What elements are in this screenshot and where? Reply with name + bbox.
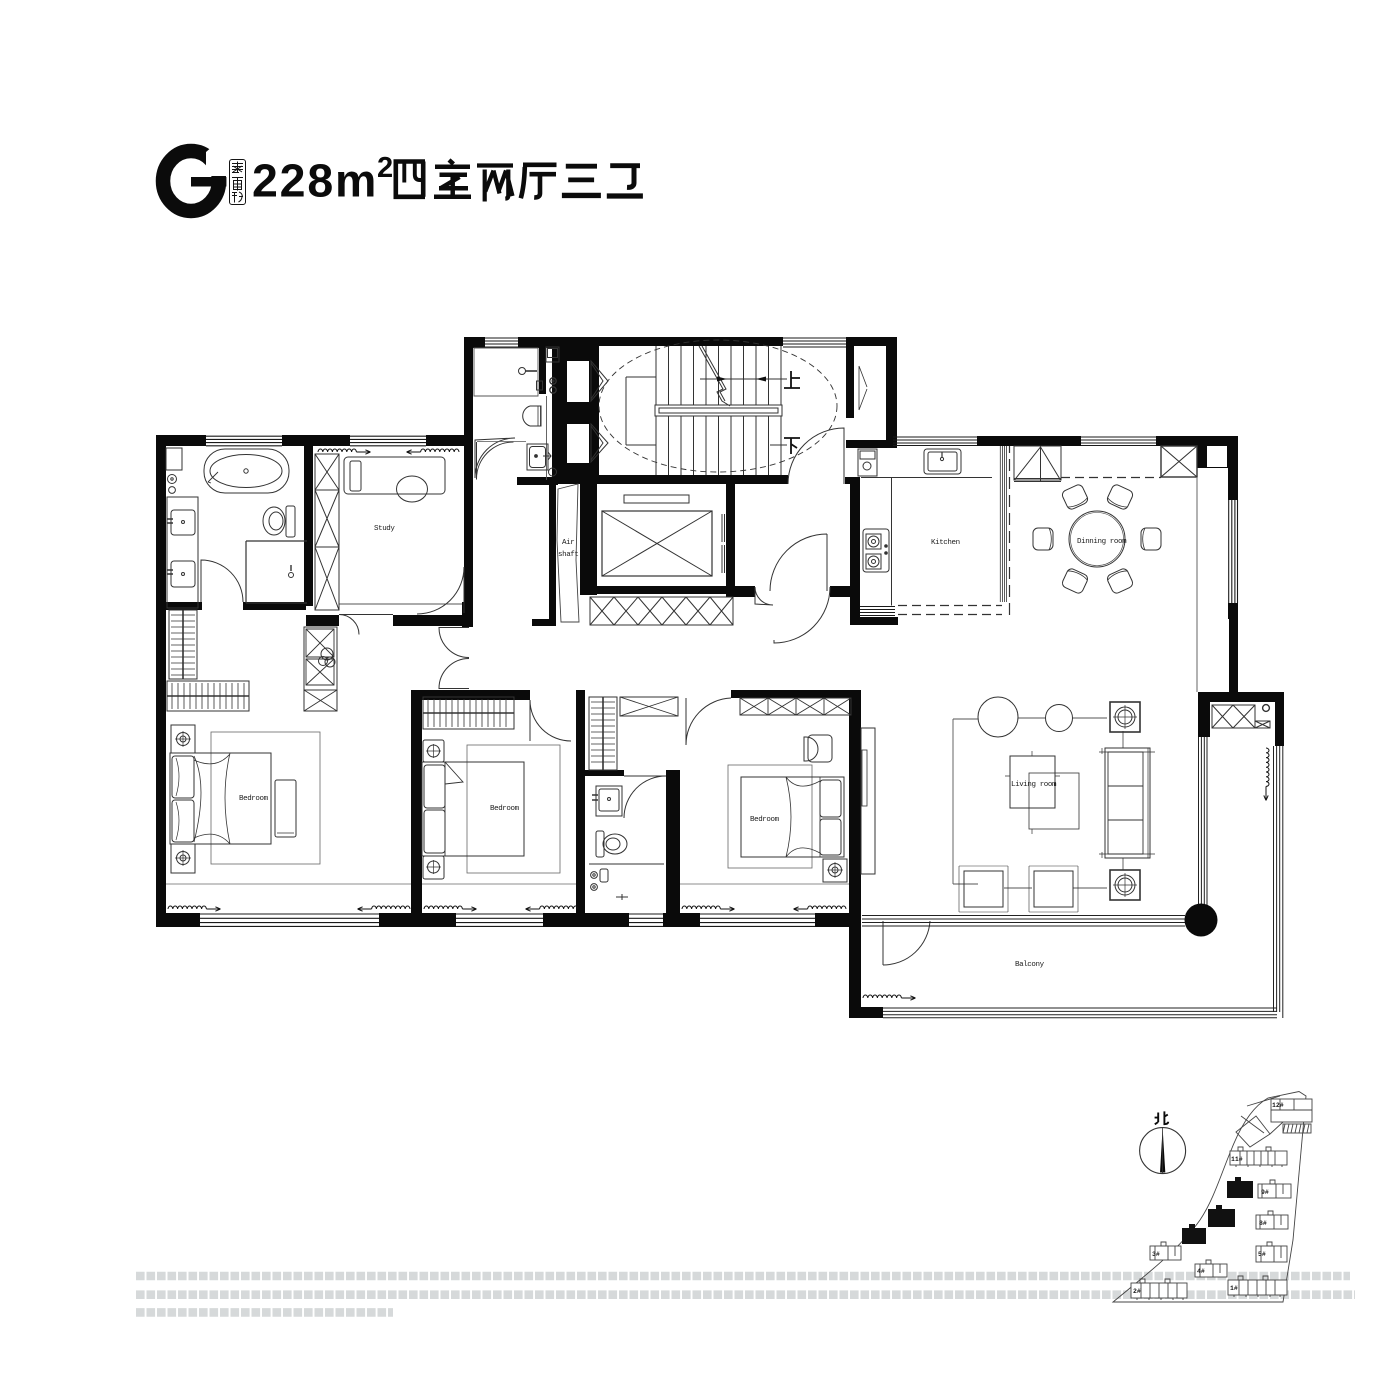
svg-text:Study: Study (374, 525, 395, 533)
svg-text:8#: 8# (1259, 1220, 1267, 1227)
svg-text:4#: 4# (1197, 1268, 1205, 1275)
svg-text:Kitchen: Kitchen (931, 539, 960, 547)
svg-text:1#: 1# (1230, 1285, 1238, 1292)
svg-text:9#: 9# (1261, 1189, 1269, 1196)
svg-text:Bedroom: Bedroom (239, 795, 269, 803)
svg-text:2#: 2# (1133, 1288, 1141, 1295)
svg-text:2: 2 (377, 152, 393, 184)
svg-text:Bedroom: Bedroom (750, 816, 780, 824)
svg-text:Dinning room: Dinning room (1077, 538, 1127, 546)
svg-text:shaft: shaft (558, 551, 579, 559)
svg-text:Balcony: Balcony (1015, 961, 1045, 969)
svg-text:3#: 3# (1152, 1251, 1160, 1258)
svg-text:Living room: Living room (1011, 781, 1057, 789)
svg-text:5#: 5# (1258, 1251, 1266, 1258)
svg-text:Air: Air (562, 539, 574, 547)
svg-text:12#: 12# (1272, 1102, 1284, 1109)
svg-text:Bedroom: Bedroom (490, 805, 520, 813)
svg-text:11#: 11# (1231, 1156, 1243, 1163)
svg-text:228m: 228m (252, 155, 378, 207)
